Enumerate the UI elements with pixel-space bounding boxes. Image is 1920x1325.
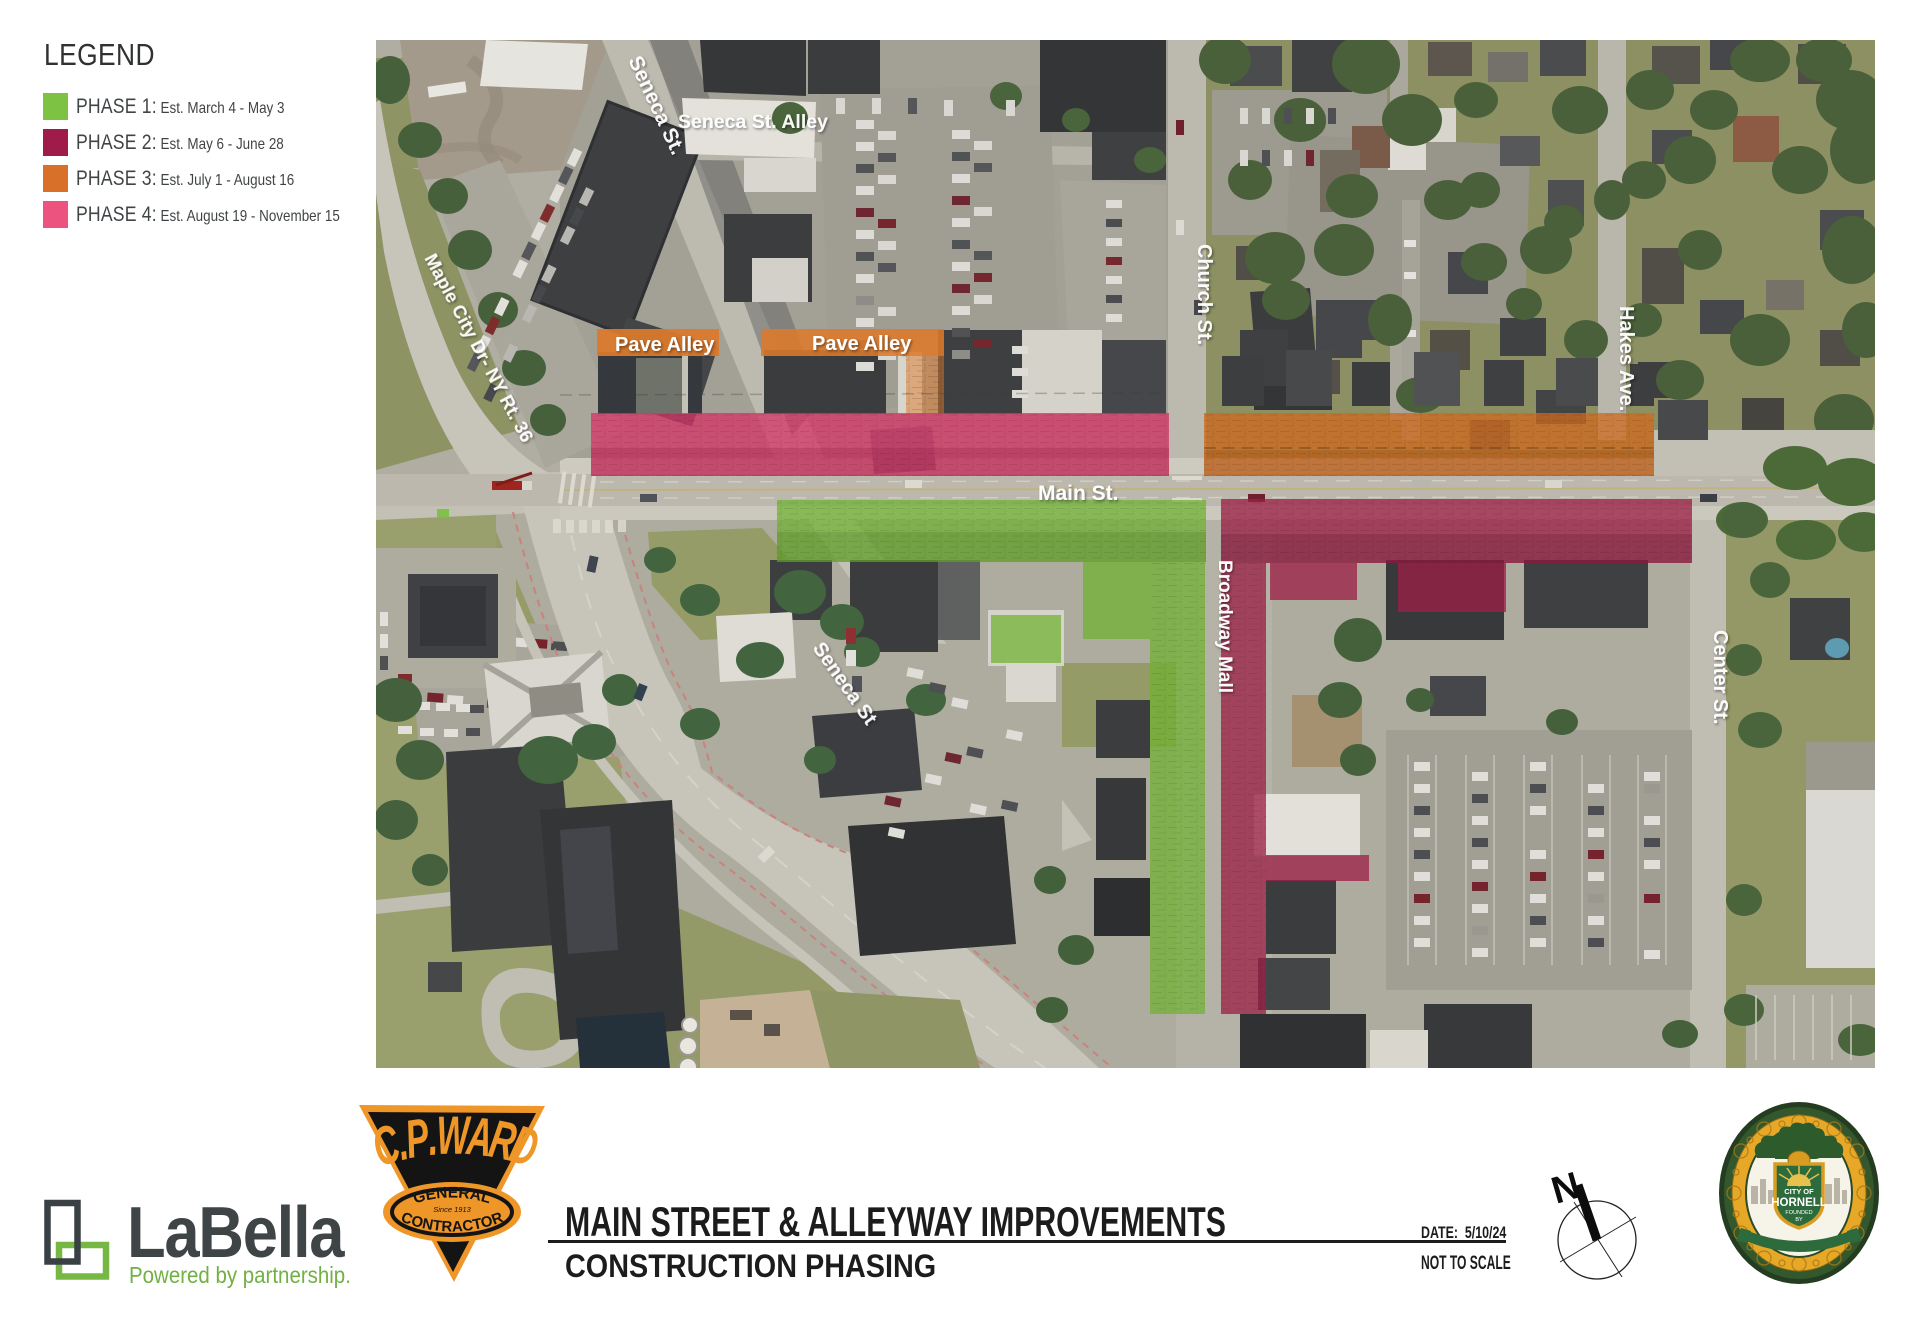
svg-text:Since 1913: Since 1913 (433, 1205, 471, 1214)
svg-text:HORNELL: HORNELL (1771, 1197, 1827, 1209)
svg-text:Church St.: Church St. (1193, 244, 1215, 345)
svg-text:N: N (1547, 1165, 1585, 1213)
svg-text:Pave Alley: Pave Alley (615, 334, 715, 356)
svg-text:Seneca St. Alley: Seneca St. Alley (678, 111, 828, 133)
svg-text:Broadway Mall: Broadway Mall (1214, 560, 1235, 693)
svg-text:Center St.: Center St. (1709, 630, 1731, 724)
svg-text:CITY OF: CITY OF (1784, 1187, 1814, 1196)
svg-text:Main St.: Main St. (1038, 482, 1119, 505)
svg-text:FOUNDED: FOUNDED (1785, 1210, 1812, 1216)
svg-text:Hakes Ave.: Hakes Ave. (1615, 306, 1637, 411)
svg-text:BY: BY (1795, 1217, 1803, 1223)
svg-text:Pave Alley: Pave Alley (812, 333, 912, 355)
